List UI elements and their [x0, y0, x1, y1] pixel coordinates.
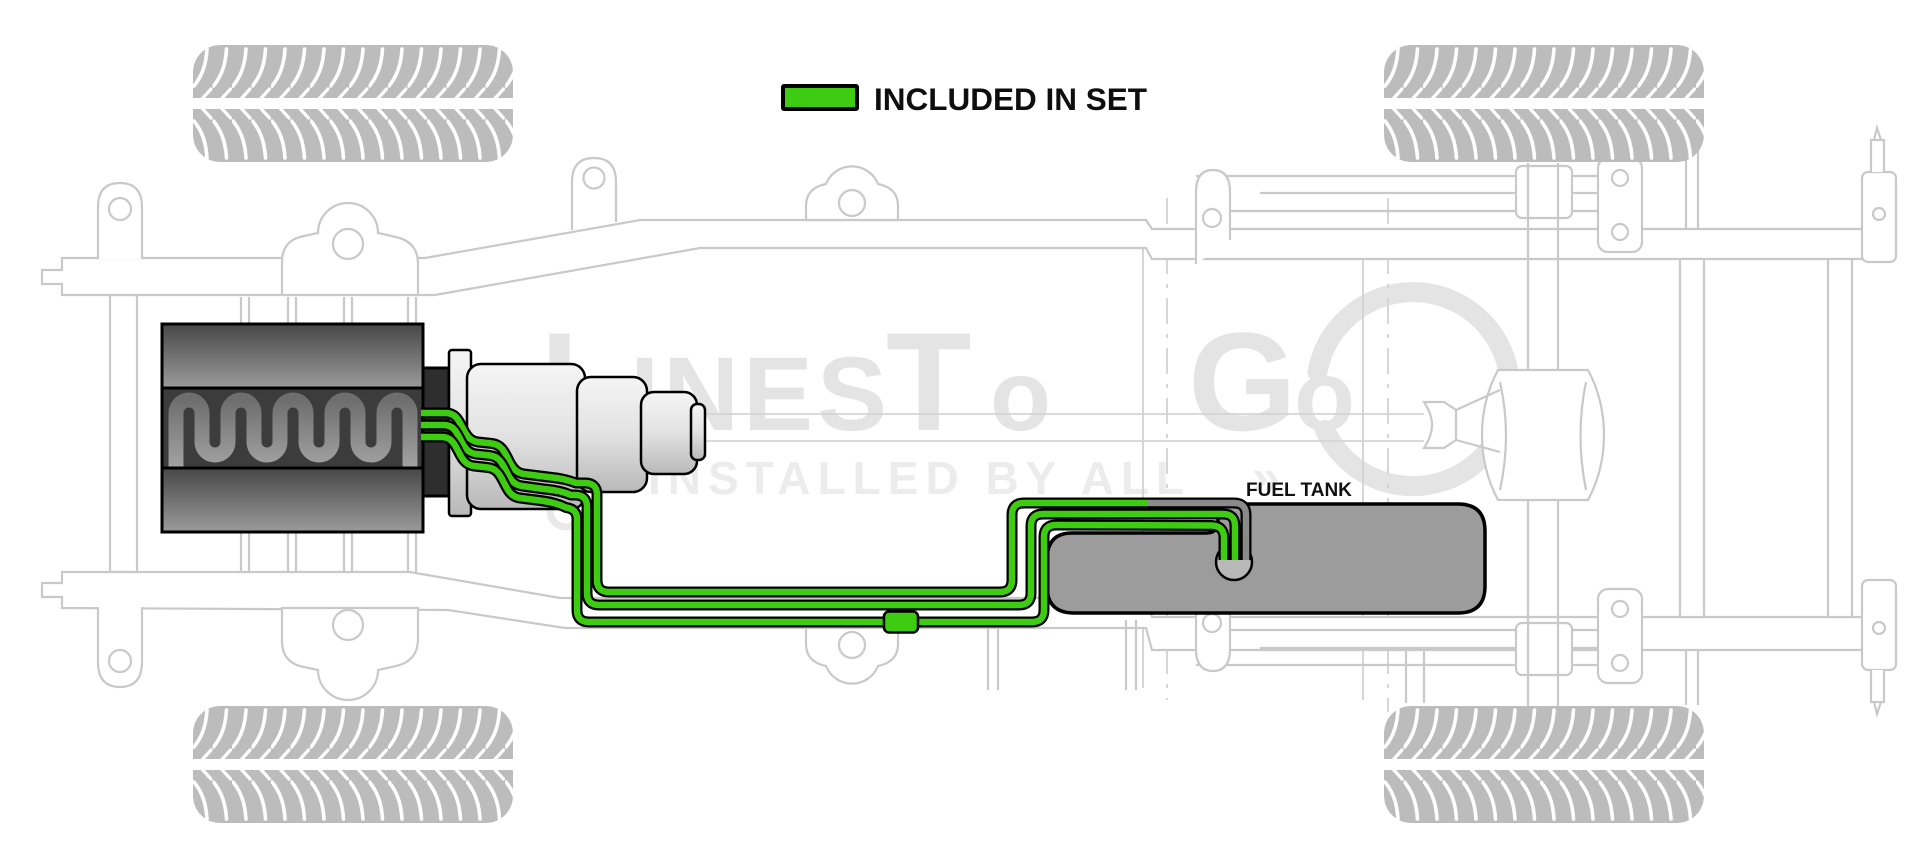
fuel-tank-straps	[988, 620, 1136, 690]
tow-bracket-front-bottom	[98, 607, 142, 687]
fuel-tank-label: FUEL TANK	[1246, 480, 1352, 501]
tire-front-right	[193, 706, 513, 823]
transmission-mid	[577, 377, 647, 492]
differential	[1482, 370, 1604, 500]
legend-label: INCLUDED IN SET	[874, 81, 1147, 117]
watermark-letter: G	[1188, 303, 1297, 460]
fuel-line-connector	[884, 612, 918, 633]
diagram-page: L INES T o G o INSTALLED BY ALL »	[0, 0, 1930, 841]
watermark-tagline: INSTALLED BY ALL	[648, 452, 1191, 504]
watermark-letter: T	[886, 303, 972, 460]
tire-rear-right	[1384, 706, 1704, 823]
transmission-output	[691, 404, 705, 460]
rear-end-crossmember	[1828, 259, 1852, 617]
front-crossmember	[110, 295, 137, 572]
rear-crossmember	[1680, 259, 1704, 617]
tire-front-left	[193, 45, 513, 162]
fuel-line-diagram: L INES T o G o INSTALLED BY ALL »	[0, 0, 1930, 841]
transmission-tail	[641, 392, 697, 474]
tow-bracket-front-top	[98, 183, 142, 259]
spring-hanger-bracket	[572, 158, 616, 230]
tire-rear-left	[1384, 45, 1704, 162]
legend: INCLUDED IN SET	[783, 81, 1147, 117]
engine-head-bottom	[162, 468, 423, 532]
rear-bumper-brackets	[1862, 128, 1896, 714]
engine	[162, 324, 449, 532]
legend-swatch	[783, 86, 857, 109]
watermark-letter: o	[990, 340, 1051, 452]
engine-head-top	[162, 324, 423, 388]
driveshaft-yoke	[1424, 402, 1456, 448]
